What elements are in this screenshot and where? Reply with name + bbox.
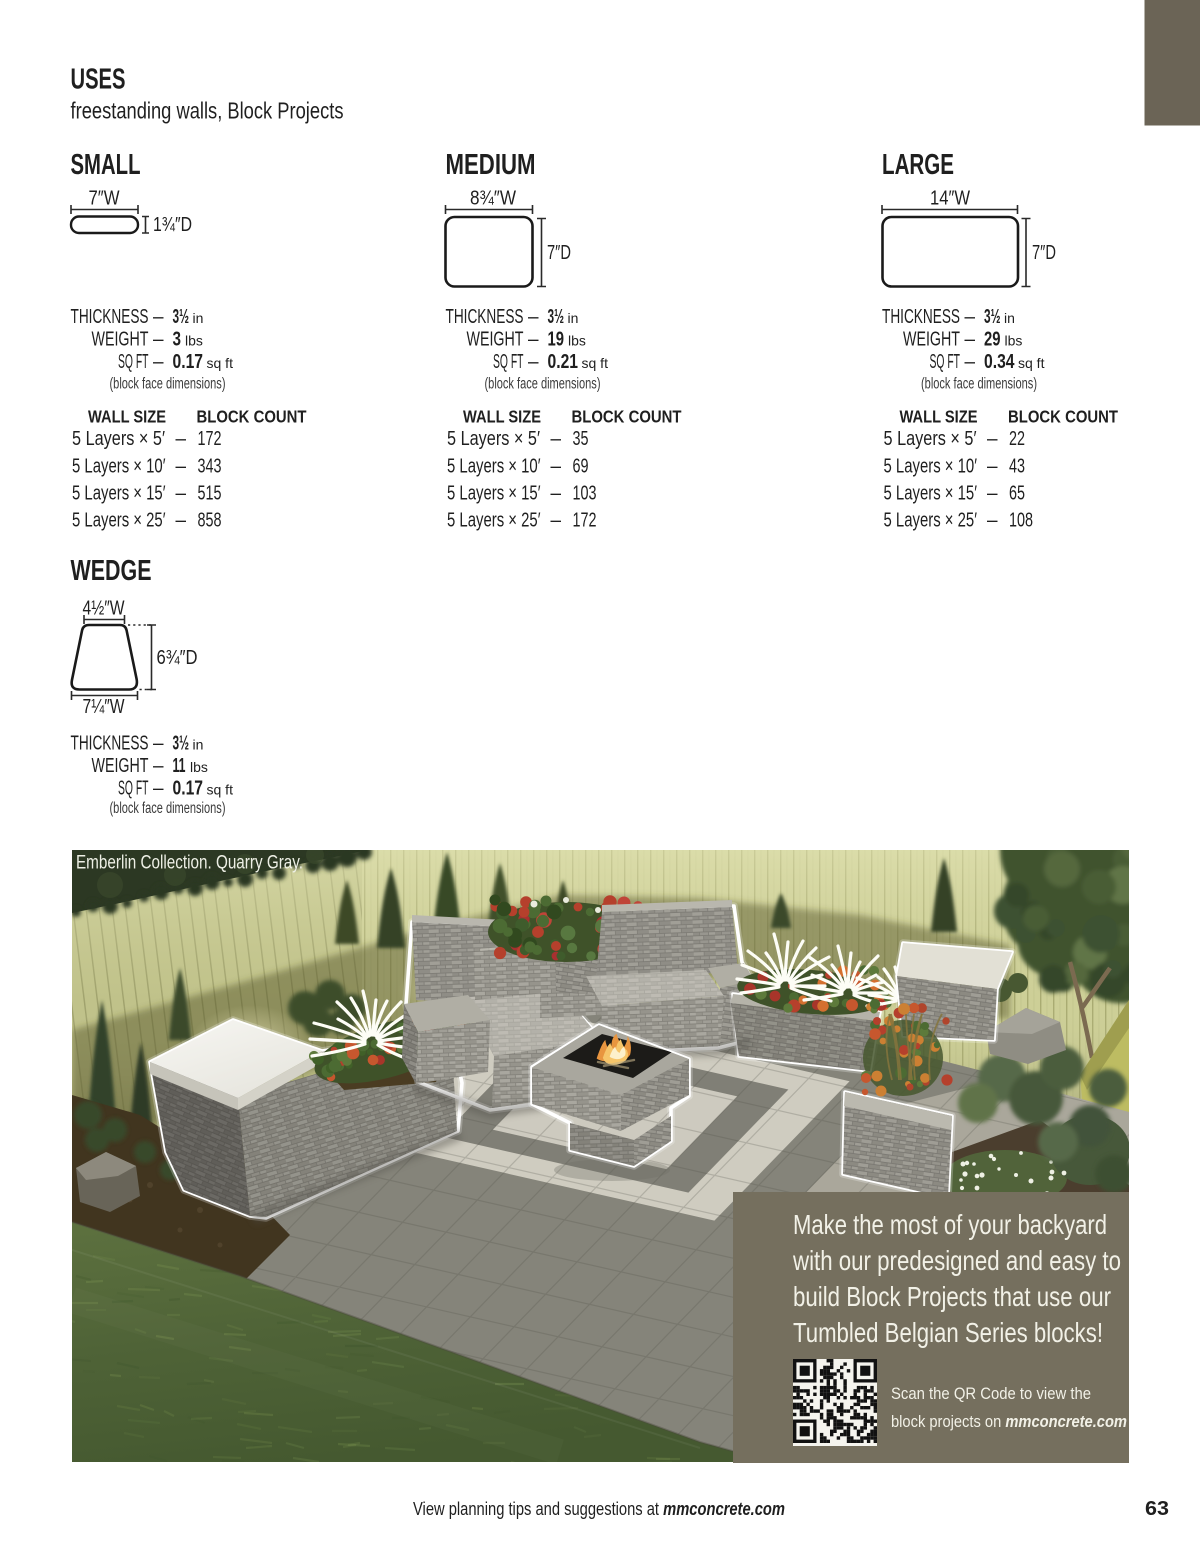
- svg-text:858: 858: [198, 510, 222, 532]
- svg-text:5 Layers × 5′: 5 Layers × 5′: [447, 428, 540, 450]
- svg-text:—: —: [528, 329, 539, 351]
- svg-text:5 Layers × 15′: 5 Layers × 15′: [447, 483, 541, 505]
- svg-text:THICKNESS: THICKNESS: [882, 306, 960, 328]
- svg-text:0.21: 0.21: [548, 351, 579, 373]
- svg-text:—: —: [176, 510, 187, 532]
- svg-text:LARGE: LARGE: [882, 149, 954, 181]
- svg-text:—: —: [528, 351, 539, 373]
- svg-text:—: —: [153, 329, 164, 351]
- svg-text:WALL SIZE: WALL SIZE: [900, 407, 978, 427]
- svg-text:5 Layers × 10′: 5 Layers × 10′: [447, 456, 541, 478]
- svg-text:172: 172: [573, 510, 597, 532]
- svg-text:65: 65: [1009, 483, 1025, 505]
- svg-text:—: —: [551, 510, 562, 532]
- svg-text:WALL SIZE: WALL SIZE: [88, 407, 166, 427]
- svg-text:172: 172: [198, 428, 222, 450]
- svg-text:69: 69: [573, 456, 589, 478]
- svg-text:BLOCK COUNT: BLOCK COUNT: [1008, 407, 1118, 427]
- svg-text:1¾″D: 1¾″D: [153, 214, 192, 236]
- svg-text:SQ FT: SQ FT: [493, 351, 524, 373]
- svg-text:lbs: lbs: [568, 333, 586, 349]
- svg-text:5 Layers × 10′: 5 Layers × 10′: [72, 456, 166, 478]
- svg-text:5 Layers × 25′: 5 Layers × 25′: [72, 510, 166, 532]
- svg-text:—: —: [551, 483, 562, 505]
- svg-text:108: 108: [1009, 510, 1033, 532]
- svg-text:WALL SIZE: WALL SIZE: [463, 407, 541, 427]
- svg-text:5 Layers × 5′: 5 Layers × 5′: [72, 428, 165, 450]
- svg-text:MEDIUM: MEDIUM: [446, 149, 536, 181]
- svg-text:—: —: [987, 428, 998, 450]
- svg-text:BLOCK COUNT: BLOCK COUNT: [197, 407, 307, 427]
- svg-text:—: —: [965, 351, 976, 373]
- svg-text:—: —: [176, 456, 187, 478]
- svg-text:3½: 3½: [173, 306, 190, 328]
- svg-text:sq ft: sq ft: [1018, 355, 1045, 371]
- svg-text:USES: USES: [71, 64, 126, 96]
- svg-text:Emberlin Collection. Quarry Gr: Emberlin Collection. Quarry Gray.: [76, 853, 303, 874]
- svg-text:19: 19: [548, 329, 565, 351]
- svg-text:(block face dimensions): (block face dimensions): [110, 800, 226, 817]
- svg-text:14″W: 14″W: [930, 188, 970, 210]
- svg-text:—: —: [153, 733, 164, 755]
- svg-text:with our predesigned and easy: with our predesigned and easy to: [792, 1245, 1121, 1276]
- svg-text:BLOCK COUNT: BLOCK COUNT: [572, 407, 682, 427]
- svg-text:—: —: [987, 456, 998, 478]
- svg-text:5 Layers × 10′: 5 Layers × 10′: [884, 456, 978, 478]
- svg-text:—: —: [176, 428, 187, 450]
- svg-text:43: 43: [1009, 456, 1025, 478]
- svg-text:THICKNESS: THICKNESS: [71, 306, 149, 328]
- svg-text:—: —: [987, 510, 998, 532]
- svg-text:—: —: [176, 483, 187, 505]
- svg-text:5 Layers × 25′: 5 Layers × 25′: [447, 510, 541, 532]
- svg-text:(block face dimensions): (block face dimensions): [485, 376, 601, 393]
- svg-text:sq ft: sq ft: [207, 782, 234, 798]
- svg-text:0.17: 0.17: [173, 351, 204, 373]
- svg-text:3½: 3½: [173, 733, 190, 755]
- svg-text:3: 3: [173, 329, 182, 351]
- svg-text:WEIGHT: WEIGHT: [467, 329, 524, 351]
- svg-text:SQ FT: SQ FT: [118, 351, 149, 373]
- svg-text:in: in: [193, 310, 204, 326]
- svg-text:in: in: [193, 737, 204, 753]
- svg-text:sq ft: sq ft: [582, 355, 609, 371]
- svg-text:THICKNESS: THICKNESS: [446, 306, 524, 328]
- svg-text:—: —: [153, 306, 164, 328]
- svg-text:THICKNESS: THICKNESS: [71, 733, 149, 755]
- svg-text:WEIGHT: WEIGHT: [92, 755, 149, 777]
- svg-text:block projects on mmconcrete.c: block projects on mmconcrete.com: [891, 1412, 1127, 1431]
- svg-text:3½: 3½: [548, 306, 565, 328]
- svg-text:lbs: lbs: [185, 333, 203, 349]
- svg-text:29: 29: [984, 329, 1001, 351]
- svg-text:103: 103: [573, 483, 597, 505]
- svg-text:WEDGE: WEDGE: [71, 555, 152, 587]
- svg-text:515: 515: [198, 483, 222, 505]
- svg-text:35: 35: [573, 428, 589, 450]
- svg-text:7″W: 7″W: [89, 188, 120, 210]
- svg-text:5 Layers × 5′: 5 Layers × 5′: [884, 428, 977, 450]
- svg-text:build Block Projects that use: build Block Projects that use our: [793, 1281, 1111, 1312]
- svg-text:lbs: lbs: [190, 759, 208, 775]
- svg-text:—: —: [153, 755, 164, 777]
- svg-text:22: 22: [1009, 428, 1025, 450]
- svg-text:8¾″W: 8¾″W: [470, 188, 516, 210]
- svg-text:sq ft: sq ft: [207, 355, 234, 371]
- svg-text:Scan the QR Code to view the: Scan the QR Code to view the: [891, 1384, 1091, 1403]
- svg-text:7¼″W: 7¼″W: [83, 696, 125, 718]
- svg-text:Tumbled Belgian Series blocks!: Tumbled Belgian Series blocks!: [793, 1317, 1103, 1348]
- svg-text:7″D: 7″D: [1032, 242, 1056, 264]
- svg-text:63: 63: [1145, 1498, 1169, 1520]
- svg-text:—: —: [153, 778, 164, 800]
- svg-text:WEIGHT: WEIGHT: [92, 329, 149, 351]
- svg-text:3½: 3½: [984, 306, 1001, 328]
- svg-text:—: —: [153, 351, 164, 373]
- svg-text:—: —: [551, 428, 562, 450]
- svg-text:View planning tips and suggest: View planning tips and suggestions at mm…: [413, 1499, 785, 1519]
- svg-text:(block face dimensions): (block face dimensions): [921, 376, 1037, 393]
- svg-text:in: in: [1004, 310, 1015, 326]
- svg-text:0.17: 0.17: [173, 778, 204, 800]
- svg-text:343: 343: [198, 456, 222, 478]
- svg-text:—: —: [965, 329, 976, 351]
- svg-text:5 Layers × 15′: 5 Layers × 15′: [72, 483, 166, 505]
- svg-text:—: —: [528, 306, 539, 328]
- svg-text:—: —: [987, 483, 998, 505]
- svg-text:SMALL: SMALL: [71, 149, 141, 181]
- svg-text:SQ FT: SQ FT: [118, 778, 149, 800]
- svg-text:(block face dimensions): (block face dimensions): [110, 376, 226, 393]
- svg-text:SQ FT: SQ FT: [930, 351, 961, 373]
- svg-text:5 Layers × 15′: 5 Layers × 15′: [884, 483, 978, 505]
- svg-text:5 Layers × 25′: 5 Layers × 25′: [884, 510, 978, 532]
- svg-text:Make the most of your backyard: Make the most of your backyard: [793, 1209, 1107, 1240]
- svg-text:freestanding walls, Block Proj: freestanding walls, Block Projects: [71, 98, 344, 124]
- svg-text:7″D: 7″D: [547, 242, 571, 264]
- svg-text:4½″W: 4½″W: [83, 598, 125, 620]
- svg-text:0.34: 0.34: [984, 351, 1015, 373]
- svg-text:—: —: [551, 456, 562, 478]
- svg-text:6¾″D: 6¾″D: [157, 647, 198, 669]
- svg-text:in: in: [568, 310, 579, 326]
- svg-text:WEIGHT: WEIGHT: [903, 329, 960, 351]
- svg-text:—: —: [965, 306, 976, 328]
- svg-text:11: 11: [173, 755, 186, 777]
- svg-text:lbs: lbs: [1005, 333, 1023, 349]
